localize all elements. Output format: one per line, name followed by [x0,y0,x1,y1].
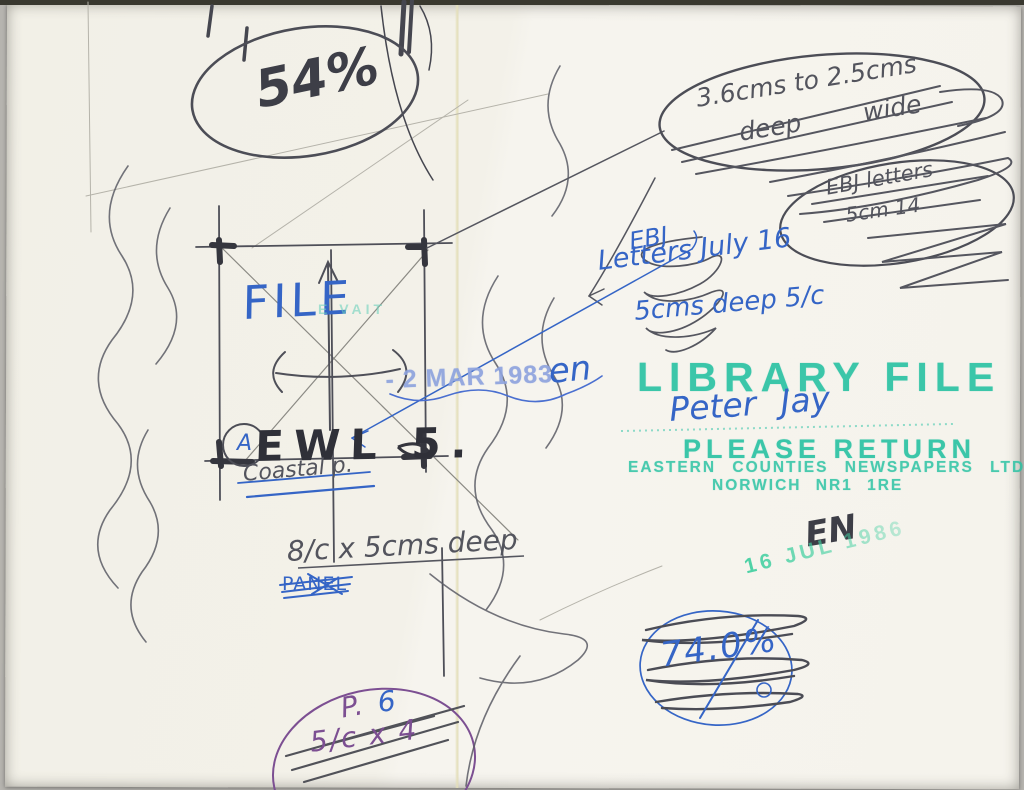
circled-letter-note: A [237,431,252,456]
date-stamp-blue: - 2 MAR 1983 [385,360,554,395]
panel-note: PANEL [282,573,347,595]
date-initials: en [547,348,593,392]
page-number-note: 6 [376,684,397,719]
company-stamp: EASTERN COUNTIES NEWSPAPERS LTD. [628,459,1024,477]
faint-stamp-text: E VAIT [318,301,386,317]
scanned-photo-back: 54% FILE E VAIT - 2 MAR 1983 en EBJ Lett… [0,0,1024,790]
address-stamp: NORWICH NR1 1RE [712,477,903,495]
